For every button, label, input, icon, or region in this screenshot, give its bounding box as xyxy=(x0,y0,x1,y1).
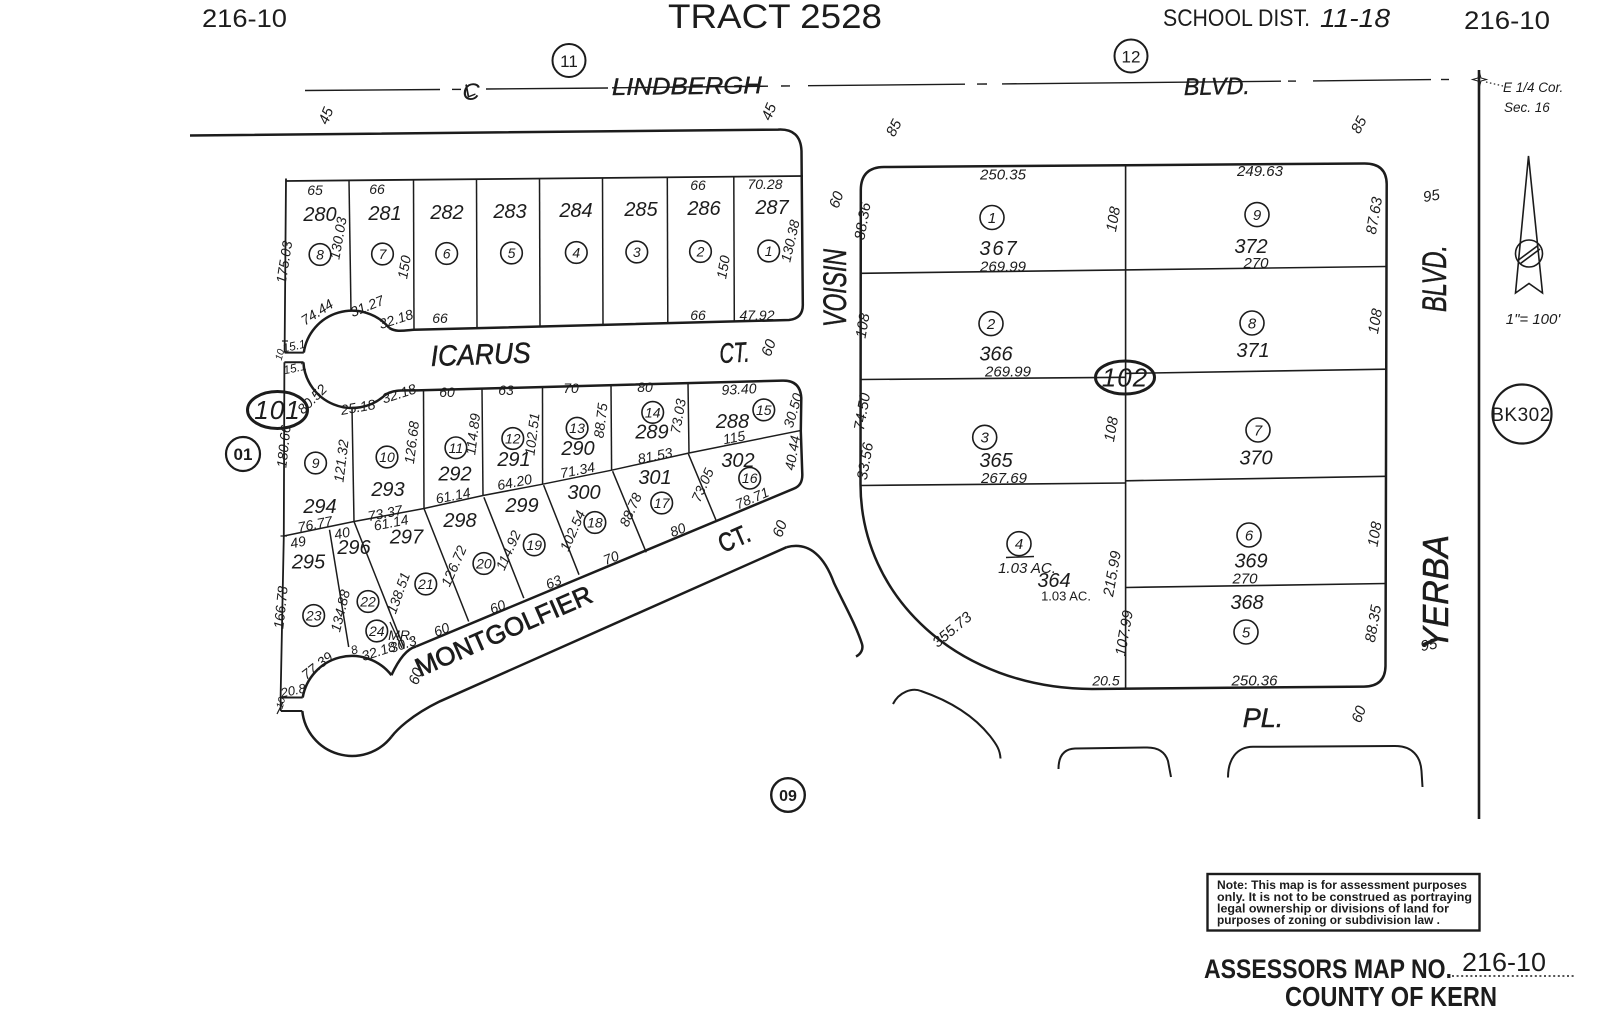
svg-text:249.63: 249.63 xyxy=(1236,163,1284,180)
svg-text:269.99: 269.99 xyxy=(984,364,1032,381)
svg-text:286: 286 xyxy=(686,198,721,220)
svg-text:290: 290 xyxy=(560,438,594,460)
svg-text:3: 3 xyxy=(633,244,641,260)
svg-text:297: 297 xyxy=(389,527,424,549)
svg-text:368: 368 xyxy=(1230,592,1263,614)
svg-text:216-10: 216-10 xyxy=(202,5,287,33)
svg-text:CT.: CT. xyxy=(719,336,751,369)
svg-text:295: 295 xyxy=(291,552,326,574)
svg-text:270: 270 xyxy=(1231,571,1258,588)
svg-text:70: 70 xyxy=(563,380,579,396)
svg-text:Sec. 16: Sec. 16 xyxy=(1504,100,1550,115)
svg-text:216-10: 216-10 xyxy=(1464,7,1550,35)
svg-text:23: 23 xyxy=(305,608,322,624)
svg-text:6: 6 xyxy=(1245,527,1254,544)
svg-text:12: 12 xyxy=(505,431,521,447)
svg-text:280: 280 xyxy=(302,204,336,226)
svg-text:365: 365 xyxy=(979,450,1013,472)
svg-text:2: 2 xyxy=(986,316,996,333)
svg-text:ASSESSORS MAP NO.: ASSESSORS MAP NO. xyxy=(1204,954,1452,984)
svg-text:LINDBERGH: LINDBERGH xyxy=(612,72,763,101)
svg-text:285: 285 xyxy=(623,199,658,221)
svg-text:19: 19 xyxy=(526,537,542,553)
svg-text:14: 14 xyxy=(645,404,661,420)
svg-text:09: 09 xyxy=(779,788,797,805)
svg-text:292: 292 xyxy=(437,464,471,486)
svg-text:101: 101 xyxy=(254,395,300,425)
svg-text:purposes of zoning or subdivis: purposes of zoning or subdivision law . xyxy=(1217,913,1440,927)
svg-text:300: 300 xyxy=(567,482,600,504)
svg-text:17: 17 xyxy=(654,495,671,511)
svg-text:2: 2 xyxy=(696,244,705,260)
svg-text:366: 366 xyxy=(979,344,1013,366)
svg-text:11: 11 xyxy=(449,440,464,456)
svg-text:4: 4 xyxy=(572,245,580,261)
svg-text:4: 4 xyxy=(1015,536,1023,553)
svg-text:5: 5 xyxy=(1242,624,1251,641)
svg-text:267.69: 267.69 xyxy=(980,470,1028,487)
svg-text:47.92: 47.92 xyxy=(739,307,774,323)
svg-text:284: 284 xyxy=(558,200,592,222)
svg-text:270: 270 xyxy=(1242,255,1269,272)
svg-text:299: 299 xyxy=(504,495,538,517)
svg-text:8: 8 xyxy=(316,247,324,263)
svg-text:369: 369 xyxy=(1234,551,1267,573)
svg-text:70.28: 70.28 xyxy=(747,176,782,192)
svg-text:22: 22 xyxy=(359,594,376,610)
svg-text:66: 66 xyxy=(690,307,706,323)
svg-text:293: 293 xyxy=(370,479,404,501)
svg-text:1: 1 xyxy=(765,243,773,259)
svg-text:3: 3 xyxy=(981,430,990,447)
svg-text:102: 102 xyxy=(1102,363,1148,393)
svg-text:YERBA: YERBA xyxy=(1415,535,1456,650)
svg-text:298: 298 xyxy=(442,510,476,532)
svg-text:SCHOOL DIST.: SCHOOL DIST. xyxy=(1163,5,1310,32)
svg-text:302: 302 xyxy=(721,450,754,472)
svg-text:COUNTY OF KERN: COUNTY OF KERN xyxy=(1285,981,1497,1012)
svg-text:7: 7 xyxy=(1254,422,1263,439)
svg-text:21: 21 xyxy=(417,576,434,592)
svg-text:287: 287 xyxy=(754,197,789,219)
svg-text:93.40: 93.40 xyxy=(721,380,757,398)
svg-text:13: 13 xyxy=(569,420,585,436)
svg-text:BK302: BK302 xyxy=(1491,405,1551,426)
svg-text:01: 01 xyxy=(234,445,253,464)
svg-text:11: 11 xyxy=(560,52,578,71)
svg-text:49: 49 xyxy=(289,533,308,552)
svg-text:269.99: 269.99 xyxy=(979,259,1027,276)
svg-text:6: 6 xyxy=(443,246,451,262)
svg-text:12: 12 xyxy=(1122,48,1141,67)
svg-text:PL.: PL. xyxy=(1243,703,1284,733)
svg-text:18: 18 xyxy=(587,515,603,531)
svg-text:E 1/4 Cor.: E 1/4 Cor. xyxy=(1503,80,1563,95)
svg-text:20: 20 xyxy=(475,556,492,572)
svg-text:250.36: 250.36 xyxy=(1231,673,1279,690)
svg-text:66: 66 xyxy=(690,177,706,193)
svg-text:BLVD.: BLVD. xyxy=(1416,245,1454,312)
svg-text:80: 80 xyxy=(637,379,653,395)
svg-text:1: 1 xyxy=(988,210,996,227)
svg-text:7: 7 xyxy=(379,246,388,262)
svg-text:371: 371 xyxy=(1236,340,1269,362)
svg-text:11-18: 11-18 xyxy=(1320,3,1391,33)
svg-text:370: 370 xyxy=(1239,448,1272,470)
svg-text:60: 60 xyxy=(439,384,455,400)
svg-text:1.03 AC.: 1.03 AC. xyxy=(1041,589,1091,604)
svg-text:16: 16 xyxy=(742,470,758,486)
svg-text:24: 24 xyxy=(368,623,385,639)
svg-text:VOISIN: VOISIN xyxy=(817,248,853,327)
svg-text:65: 65 xyxy=(307,182,323,198)
svg-text:5: 5 xyxy=(508,245,516,261)
svg-text:20.5: 20.5 xyxy=(1091,673,1119,689)
svg-text:281: 281 xyxy=(367,203,401,225)
svg-text:289: 289 xyxy=(634,422,668,444)
svg-text:250.35: 250.35 xyxy=(979,167,1027,184)
svg-text:BLVD.: BLVD. xyxy=(1184,73,1250,101)
svg-text:ICARUS: ICARUS xyxy=(430,338,532,373)
svg-text:216-10: 216-10 xyxy=(1462,947,1546,977)
svg-text:10: 10 xyxy=(379,449,395,465)
svg-text:63: 63 xyxy=(498,382,514,398)
svg-text:TRACT 2528: TRACT 2528 xyxy=(668,0,882,36)
svg-text:15: 15 xyxy=(756,402,772,418)
svg-text:367: 367 xyxy=(979,238,1018,260)
svg-text:301: 301 xyxy=(638,467,671,489)
svg-text:282: 282 xyxy=(429,202,463,224)
svg-text:8: 8 xyxy=(1248,315,1257,332)
svg-text:66: 66 xyxy=(432,310,448,326)
svg-text:9: 9 xyxy=(1253,207,1262,224)
svg-text:283: 283 xyxy=(492,201,526,223)
svg-text:40: 40 xyxy=(333,524,352,543)
svg-text:1"= 100': 1"= 100' xyxy=(1506,311,1562,328)
svg-text:9: 9 xyxy=(312,455,320,471)
svg-text:66: 66 xyxy=(369,181,385,197)
